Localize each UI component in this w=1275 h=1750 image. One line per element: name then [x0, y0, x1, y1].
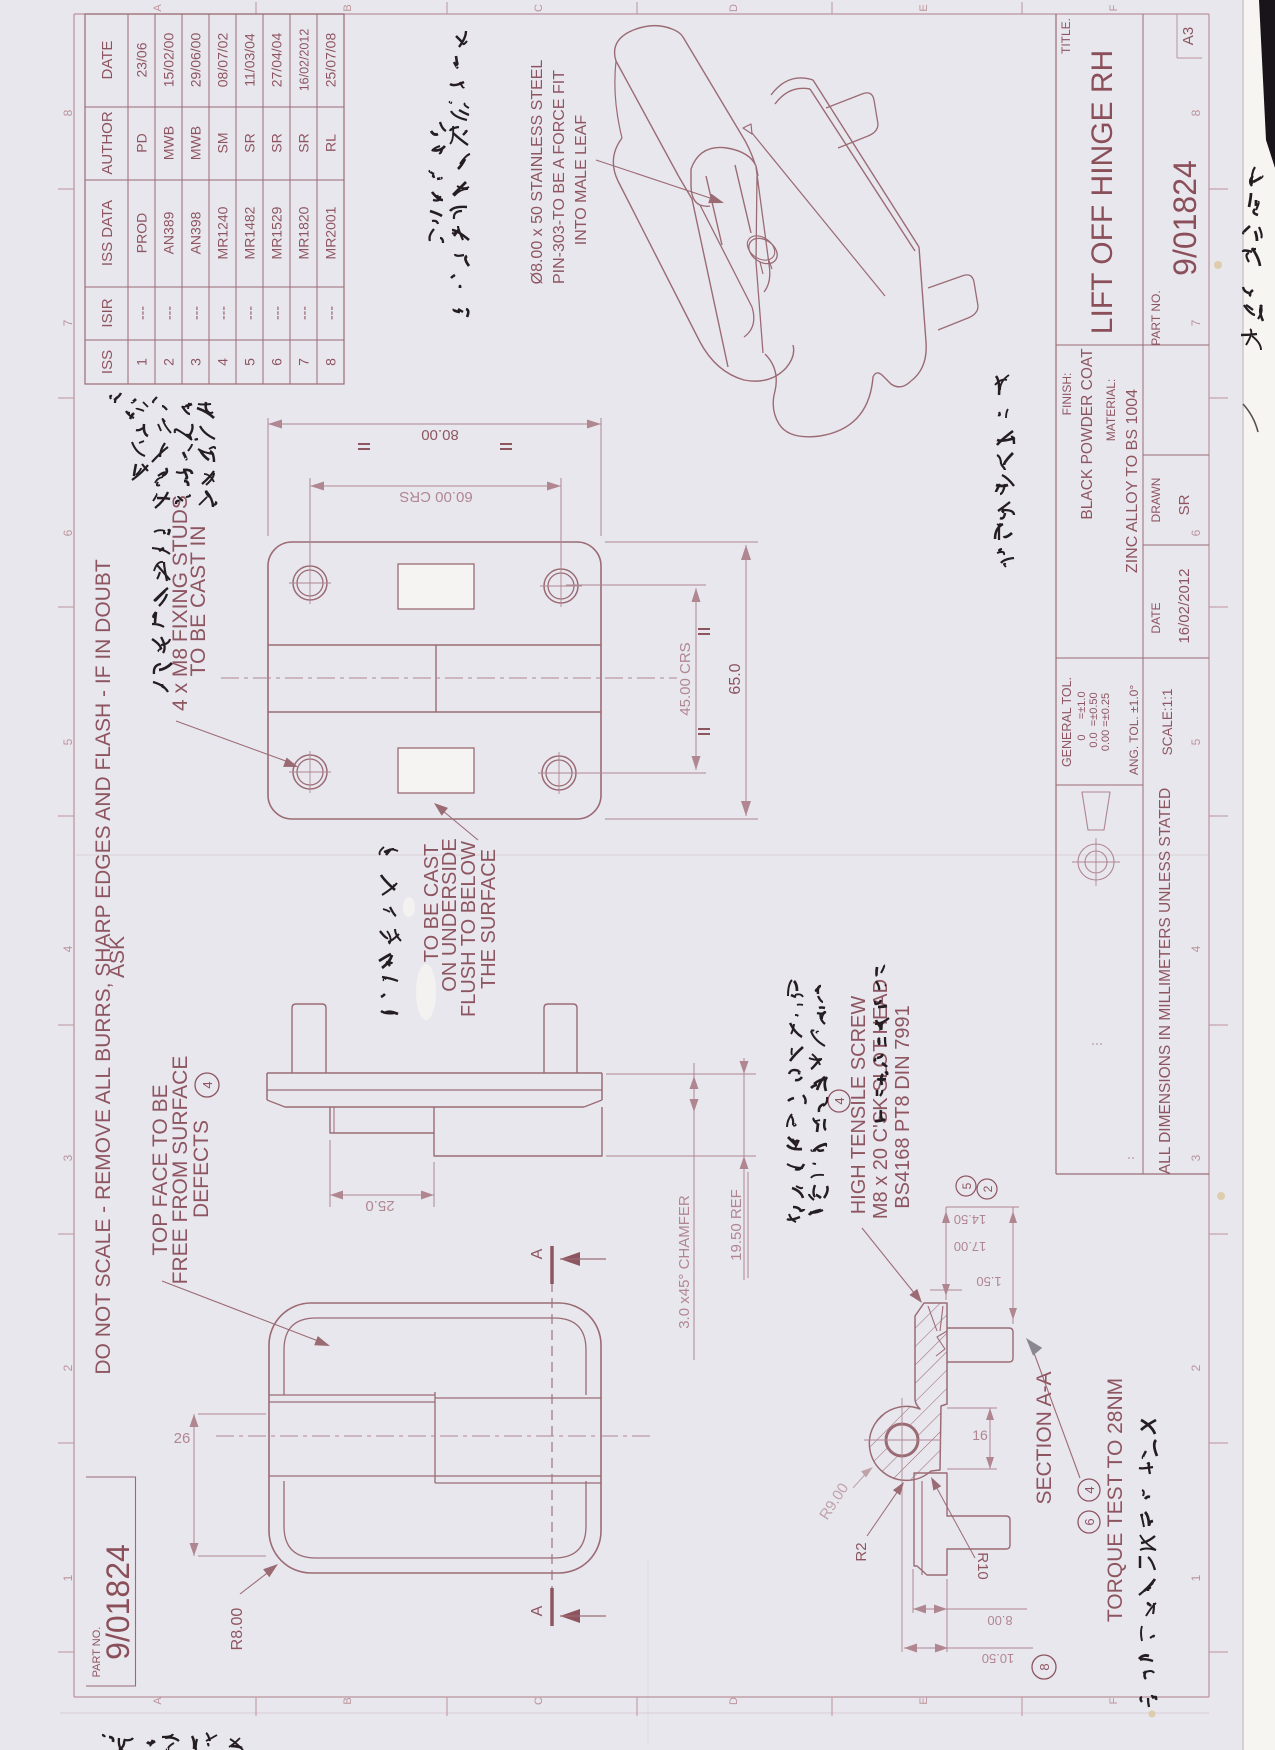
- svg-text:2: 2: [1189, 1364, 1203, 1371]
- svg-text:DEFECTS: DEFECTS: [190, 1120, 213, 1218]
- svg-text:2: 2: [981, 1185, 995, 1192]
- svg-text:0 =±1.0: 0 =±1.0: [1076, 691, 1088, 740]
- svg-text:4: 4: [215, 358, 231, 366]
- svg-text:15/02/00: 15/02/00: [161, 33, 177, 88]
- svg-text:29/06/00: 29/06/00: [188, 33, 204, 88]
- svg-text:B: B: [342, 4, 354, 11]
- svg-text:R10: R10: [974, 1552, 991, 1580]
- svg-text:2: 2: [61, 1364, 75, 1371]
- svg-text:C: C: [533, 1697, 545, 1705]
- svg-text:---: ---: [161, 306, 177, 320]
- svg-text:DRAWN: DRAWN: [1149, 478, 1163, 523]
- svg-text:MR1820: MR1820: [296, 206, 312, 259]
- svg-text:1: 1: [1189, 1574, 1203, 1581]
- svg-text:FREE FROM SURFACE: FREE FROM SURFACE: [169, 1056, 192, 1285]
- svg-text:5: 5: [61, 738, 75, 745]
- svg-text:SM: SM: [215, 133, 231, 154]
- svg-text:4: 4: [1082, 1486, 1097, 1493]
- svg-text:6: 6: [61, 529, 75, 536]
- svg-text:80.00: 80.00: [421, 426, 459, 443]
- svg-text:4: 4: [1189, 945, 1203, 952]
- svg-text:PD: PD: [134, 133, 150, 152]
- svg-text:PART NO.: PART NO.: [1149, 290, 1163, 345]
- svg-text:MR1482: MR1482: [242, 206, 258, 259]
- svg-text:DATE: DATE: [99, 41, 116, 80]
- svg-text:FINISH:: FINISH:: [1060, 373, 1074, 416]
- svg-text:8: 8: [61, 109, 75, 116]
- svg-text:R2: R2: [853, 1542, 870, 1561]
- svg-text:ANG. TOL. ±1.0°: ANG. TOL. ±1.0°: [1127, 685, 1141, 776]
- svg-text:9/01824: 9/01824: [1167, 160, 1203, 276]
- svg-text:27/04/04: 27/04/04: [269, 33, 285, 88]
- svg-text:F: F: [1108, 4, 1120, 11]
- svg-text:LIFT OFF HINGE RH: LIFT OFF HINGE RH: [1086, 50, 1119, 334]
- svg-text:ZINC ALLOY TO BS 1004: ZINC ALLOY TO BS 1004: [1124, 389, 1141, 573]
- svg-text:A: A: [529, 1605, 546, 1616]
- svg-text:INTO MALE LEAF: INTO MALE LEAF: [573, 115, 590, 246]
- svg-text:SCALE:1:1: SCALE:1:1: [1160, 689, 1175, 756]
- svg-text:M8 x 20 C'SK SLOT HEAD: M8 x 20 C'SK SLOT HEAD: [870, 979, 892, 1219]
- svg-text:A3: A3: [1180, 27, 1197, 45]
- svg-text:2: 2: [161, 358, 177, 366]
- svg-text:SR: SR: [296, 133, 312, 152]
- svg-text:ISIR: ISIR: [99, 298, 116, 327]
- svg-text:3.0 x45° CHAMFER: 3.0 x45° CHAMFER: [676, 1195, 693, 1329]
- svg-text:10.50: 10.50: [982, 1651, 1015, 1666]
- svg-text:---: ---: [134, 306, 150, 320]
- svg-text:PIN-303-TO BE A FORCE FIT: PIN-303-TO BE A FORCE FIT: [551, 70, 568, 284]
- svg-text:3: 3: [1189, 1154, 1203, 1161]
- svg-text:D: D: [728, 4, 740, 12]
- svg-text:4: 4: [200, 1081, 215, 1088]
- svg-text:7: 7: [61, 319, 75, 326]
- svg-text:DATE: DATE: [1149, 602, 1163, 633]
- svg-text:8: 8: [1189, 109, 1203, 116]
- svg-text:C: C: [533, 4, 545, 12]
- svg-text:6: 6: [1189, 529, 1203, 536]
- svg-text:A: A: [529, 1248, 546, 1259]
- svg-text:ISS: ISS: [99, 350, 116, 374]
- svg-text:RL: RL: [323, 134, 339, 152]
- svg-text:ALL DIMENSIONS IN MILLIMETERS: ALL DIMENSIONS IN MILLIMETERS UNLESS STA…: [1157, 788, 1174, 1174]
- svg-text:B: B: [342, 1697, 354, 1704]
- svg-text:8.00: 8.00: [987, 1613, 1012, 1628]
- svg-text:11/03/04: 11/03/04: [242, 33, 258, 87]
- svg-text:25.0: 25.0: [365, 1197, 394, 1214]
- svg-text:1: 1: [61, 1574, 75, 1581]
- svg-text:MWB: MWB: [188, 126, 204, 160]
- svg-text:16/02/2012: 16/02/2012: [1176, 568, 1193, 643]
- svg-text:45.00 CRS: 45.00 CRS: [677, 642, 694, 715]
- svg-text:1: 1: [134, 358, 150, 366]
- svg-text:65.0: 65.0: [727, 663, 744, 694]
- svg-text:3: 3: [188, 358, 204, 366]
- svg-text:PROD: PROD: [134, 213, 150, 253]
- svg-text:8: 8: [323, 358, 339, 366]
- svg-text:6: 6: [269, 358, 285, 366]
- svg-text:17.00: 17.00: [954, 1239, 987, 1254]
- svg-text:---: ---: [323, 306, 339, 320]
- svg-text:16: 16: [972, 1427, 988, 1443]
- svg-text:0.00 =±0.25: 0.00 =±0.25: [1100, 693, 1112, 751]
- svg-text:SR: SR: [242, 133, 258, 152]
- svg-text:MWB: MWB: [161, 126, 177, 160]
- svg-text:TITLE.: TITLE.: [1059, 18, 1073, 54]
- svg-text:A: A: [152, 4, 164, 12]
- svg-text:Ø8.00 x 50 STAINLESS STEEL: Ø8.00 x 50 STAINLESS STEEL: [529, 60, 546, 285]
- svg-text:5: 5: [242, 358, 258, 366]
- svg-text:08/07/02: 08/07/02: [215, 33, 231, 88]
- svg-text:HIGH TENSILE SCREW: HIGH TENSILE SCREW: [848, 996, 870, 1215]
- svg-text:3: 3: [61, 1154, 75, 1161]
- svg-text:SR: SR: [1176, 494, 1193, 515]
- svg-text:26: 26: [174, 1430, 191, 1447]
- svg-text:5: 5: [960, 1182, 974, 1189]
- svg-text:TORQUE TEST TO 28NM: TORQUE TEST TO 28NM: [1104, 1378, 1127, 1622]
- svg-text:7: 7: [1189, 319, 1203, 326]
- svg-text:E: E: [918, 1697, 930, 1704]
- svg-text:FLUSH TO BELOW: FLUSH TO BELOW: [458, 841, 480, 1017]
- svg-text:ASK: ASK: [106, 936, 129, 978]
- svg-text:BS4168 PT8 DIN 7991: BS4168 PT8 DIN 7991: [892, 1005, 914, 1208]
- svg-text:14.50: 14.50: [954, 1212, 987, 1227]
- svg-text:8: 8: [1037, 1663, 1052, 1670]
- svg-text:---: ---: [242, 306, 258, 320]
- svg-text:TO BE CAST IN: TO BE CAST IN: [187, 526, 210, 677]
- svg-text:4: 4: [61, 945, 75, 952]
- svg-text:ISS DATA: ISS DATA: [99, 200, 116, 266]
- svg-text:THE SURFACE: THE SURFACE: [478, 849, 500, 989]
- svg-text:A: A: [152, 1697, 164, 1705]
- svg-text:D: D: [728, 1697, 740, 1705]
- svg-text:19.50 REF: 19.50 REF: [728, 1189, 745, 1261]
- svg-text:4: 4: [832, 1097, 847, 1104]
- svg-text:25/07/08: 25/07/08: [323, 33, 339, 88]
- svg-text:---: ---: [215, 306, 231, 320]
- svg-text:1.50: 1.50: [976, 1274, 1001, 1289]
- svg-text:MR2001: MR2001: [323, 206, 339, 259]
- svg-text:F: F: [1108, 1697, 1120, 1704]
- svg-text:16/02/2012: 16/02/2012: [298, 29, 312, 92]
- svg-text:AN398: AN398: [188, 211, 204, 254]
- svg-text:---: ---: [269, 306, 285, 320]
- svg-text:GENERAL TOL.: GENERAL TOL.: [1060, 677, 1074, 767]
- svg-text:MR1240: MR1240: [215, 206, 231, 259]
- svg-text:SR: SR: [269, 133, 285, 152]
- svg-text:---: ---: [188, 306, 204, 320]
- svg-text:AUTHOR: AUTHOR: [99, 111, 116, 175]
- svg-text:0.0 =±0.50: 0.0 =±0.50: [1088, 692, 1100, 747]
- svg-text:23/06: 23/06: [134, 42, 150, 77]
- svg-text:5: 5: [1189, 738, 1203, 745]
- svg-text:AN389: AN389: [161, 211, 177, 254]
- svg-text:9/01824: 9/01824: [100, 1544, 136, 1660]
- svg-text:MATERIAL:: MATERIAL:: [1104, 379, 1118, 441]
- svg-text:R8.00: R8.00: [229, 1608, 246, 1651]
- svg-text:---: ---: [296, 306, 312, 320]
- svg-text:E: E: [918, 4, 930, 11]
- svg-text:MR1529: MR1529: [269, 206, 285, 259]
- svg-text:BLACK POWDER COAT: BLACK POWDER COAT: [1079, 348, 1096, 520]
- svg-text:60.00 CRS: 60.00 CRS: [399, 488, 472, 505]
- svg-text:6: 6: [1082, 1518, 1097, 1525]
- svg-text:7: 7: [296, 358, 312, 366]
- svg-text:SECTION A-A: SECTION A-A: [1033, 1371, 1056, 1504]
